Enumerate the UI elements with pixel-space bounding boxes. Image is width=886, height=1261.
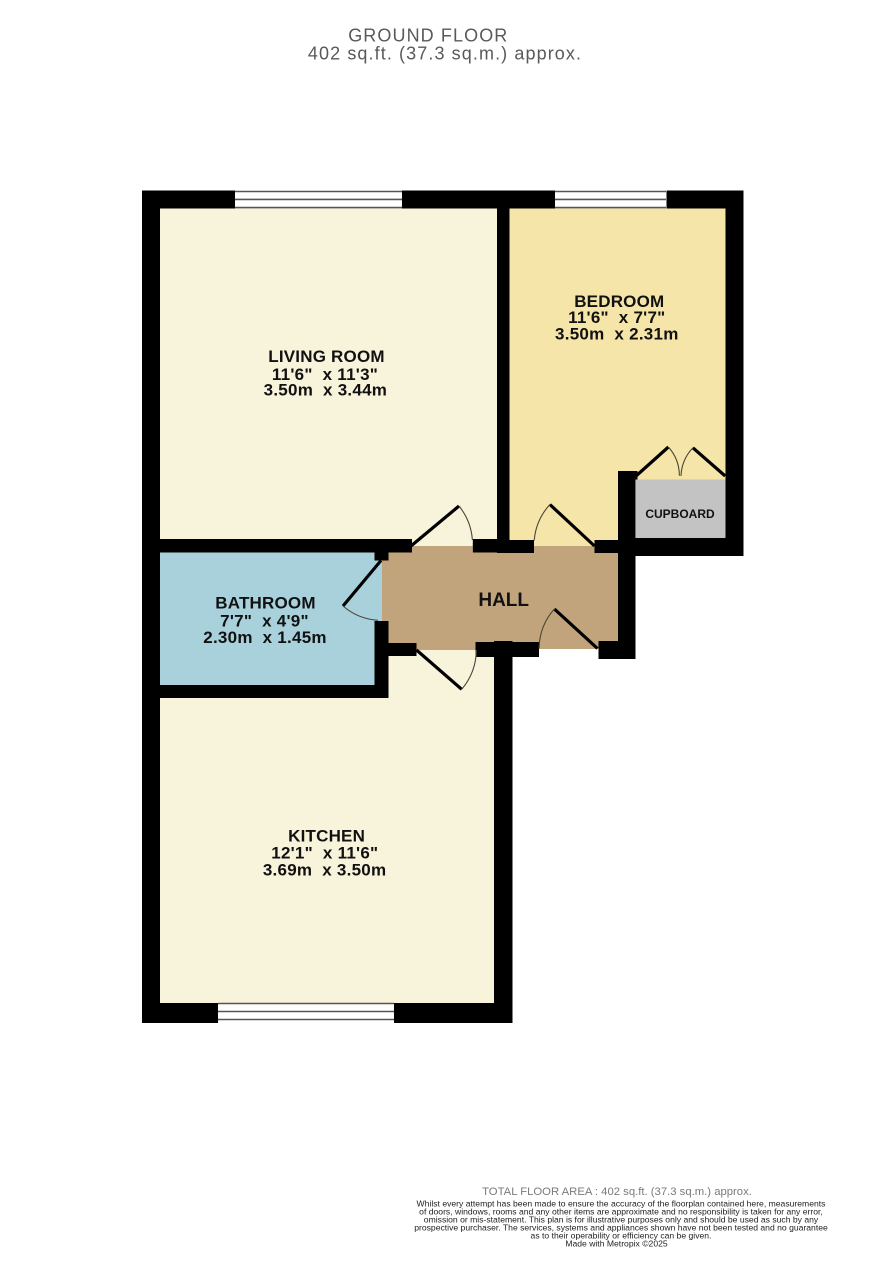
svg-text:3.50m x 3.44m: 3.50m x 3.44m bbox=[264, 381, 388, 400]
svg-text:BATHROOM: BATHROOM bbox=[215, 594, 315, 613]
svg-text:3.50m x 2.31m: 3.50m x 2.31m bbox=[555, 325, 679, 344]
svg-text:Made with Metropix ©2025: Made with Metropix ©2025 bbox=[565, 1239, 668, 1249]
svg-text:402 sq.ft. (37.3 sq.m.) approx: 402 sq.ft. (37.3 sq.m.) approx. bbox=[308, 44, 582, 64]
svg-text:GROUND FLOOR: GROUND FLOOR bbox=[348, 26, 508, 46]
svg-text:HALL: HALL bbox=[478, 590, 529, 611]
svg-text:CUPBOARD: CUPBOARD bbox=[645, 507, 715, 521]
svg-text:TOTAL FLOOR AREA : 402 sq.ft.: TOTAL FLOOR AREA : 402 sq.ft. (37.3 sq.m… bbox=[482, 1186, 752, 1198]
svg-text:LIVING ROOM: LIVING ROOM bbox=[268, 347, 384, 366]
svg-text:3.69m x 3.50m: 3.69m x 3.50m bbox=[263, 860, 387, 879]
svg-text:2.30m x 1.45m: 2.30m x 1.45m bbox=[203, 628, 327, 647]
